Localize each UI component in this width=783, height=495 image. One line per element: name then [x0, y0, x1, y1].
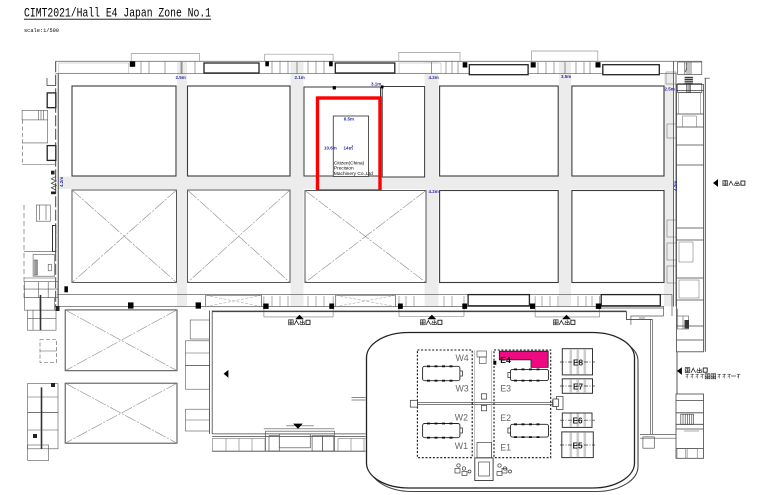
- svg-text:2.5m: 2.5m: [176, 75, 186, 80]
- svg-text:E1: E1: [500, 443, 511, 453]
- svg-text:2.1m: 2.1m: [295, 75, 305, 80]
- svg-text:W4: W4: [456, 353, 469, 363]
- svg-text:scale:1/500: scale:1/500: [24, 27, 60, 34]
- svg-text:10.6m: 10.6m: [324, 146, 337, 151]
- svg-text:6.5m: 6.5m: [344, 117, 354, 122]
- svg-text:W2: W2: [455, 412, 468, 422]
- svg-text:E7: E7: [573, 382, 583, 391]
- svg-text:W3: W3: [456, 383, 469, 393]
- svg-text:E8: E8: [573, 358, 583, 367]
- svg-text:4.2m: 4.2m: [673, 181, 678, 191]
- svg-text:Citizen(China): Citizen(China): [334, 160, 365, 166]
- svg-text:4.2m: 4.2m: [429, 189, 439, 194]
- svg-text:Precision: Precision: [334, 166, 354, 172]
- svg-text:E2: E2: [500, 413, 511, 423]
- svg-text:E4: E4: [500, 355, 511, 365]
- svg-text:2.5m: 2.5m: [665, 87, 675, 92]
- svg-text:E6: E6: [573, 417, 583, 426]
- svg-text:14㎡: 14㎡: [344, 145, 354, 151]
- svg-text:E3: E3: [500, 383, 511, 393]
- svg-text:4.2m: 4.2m: [429, 75, 439, 80]
- svg-text:Machinery Co.,Ltd: Machinery Co.,Ltd: [334, 171, 373, 177]
- svg-text:E5: E5: [573, 441, 583, 450]
- svg-text:3.1m: 3.1m: [371, 81, 381, 86]
- svg-text:3.5m: 3.5m: [561, 74, 571, 79]
- svg-text:CIMT2021/Hall E4 Japan Zone No: CIMT2021/Hall E4 Japan Zone No.1: [24, 6, 211, 21]
- svg-text:4.2m: 4.2m: [59, 177, 64, 187]
- svg-text:W1: W1: [455, 441, 468, 451]
